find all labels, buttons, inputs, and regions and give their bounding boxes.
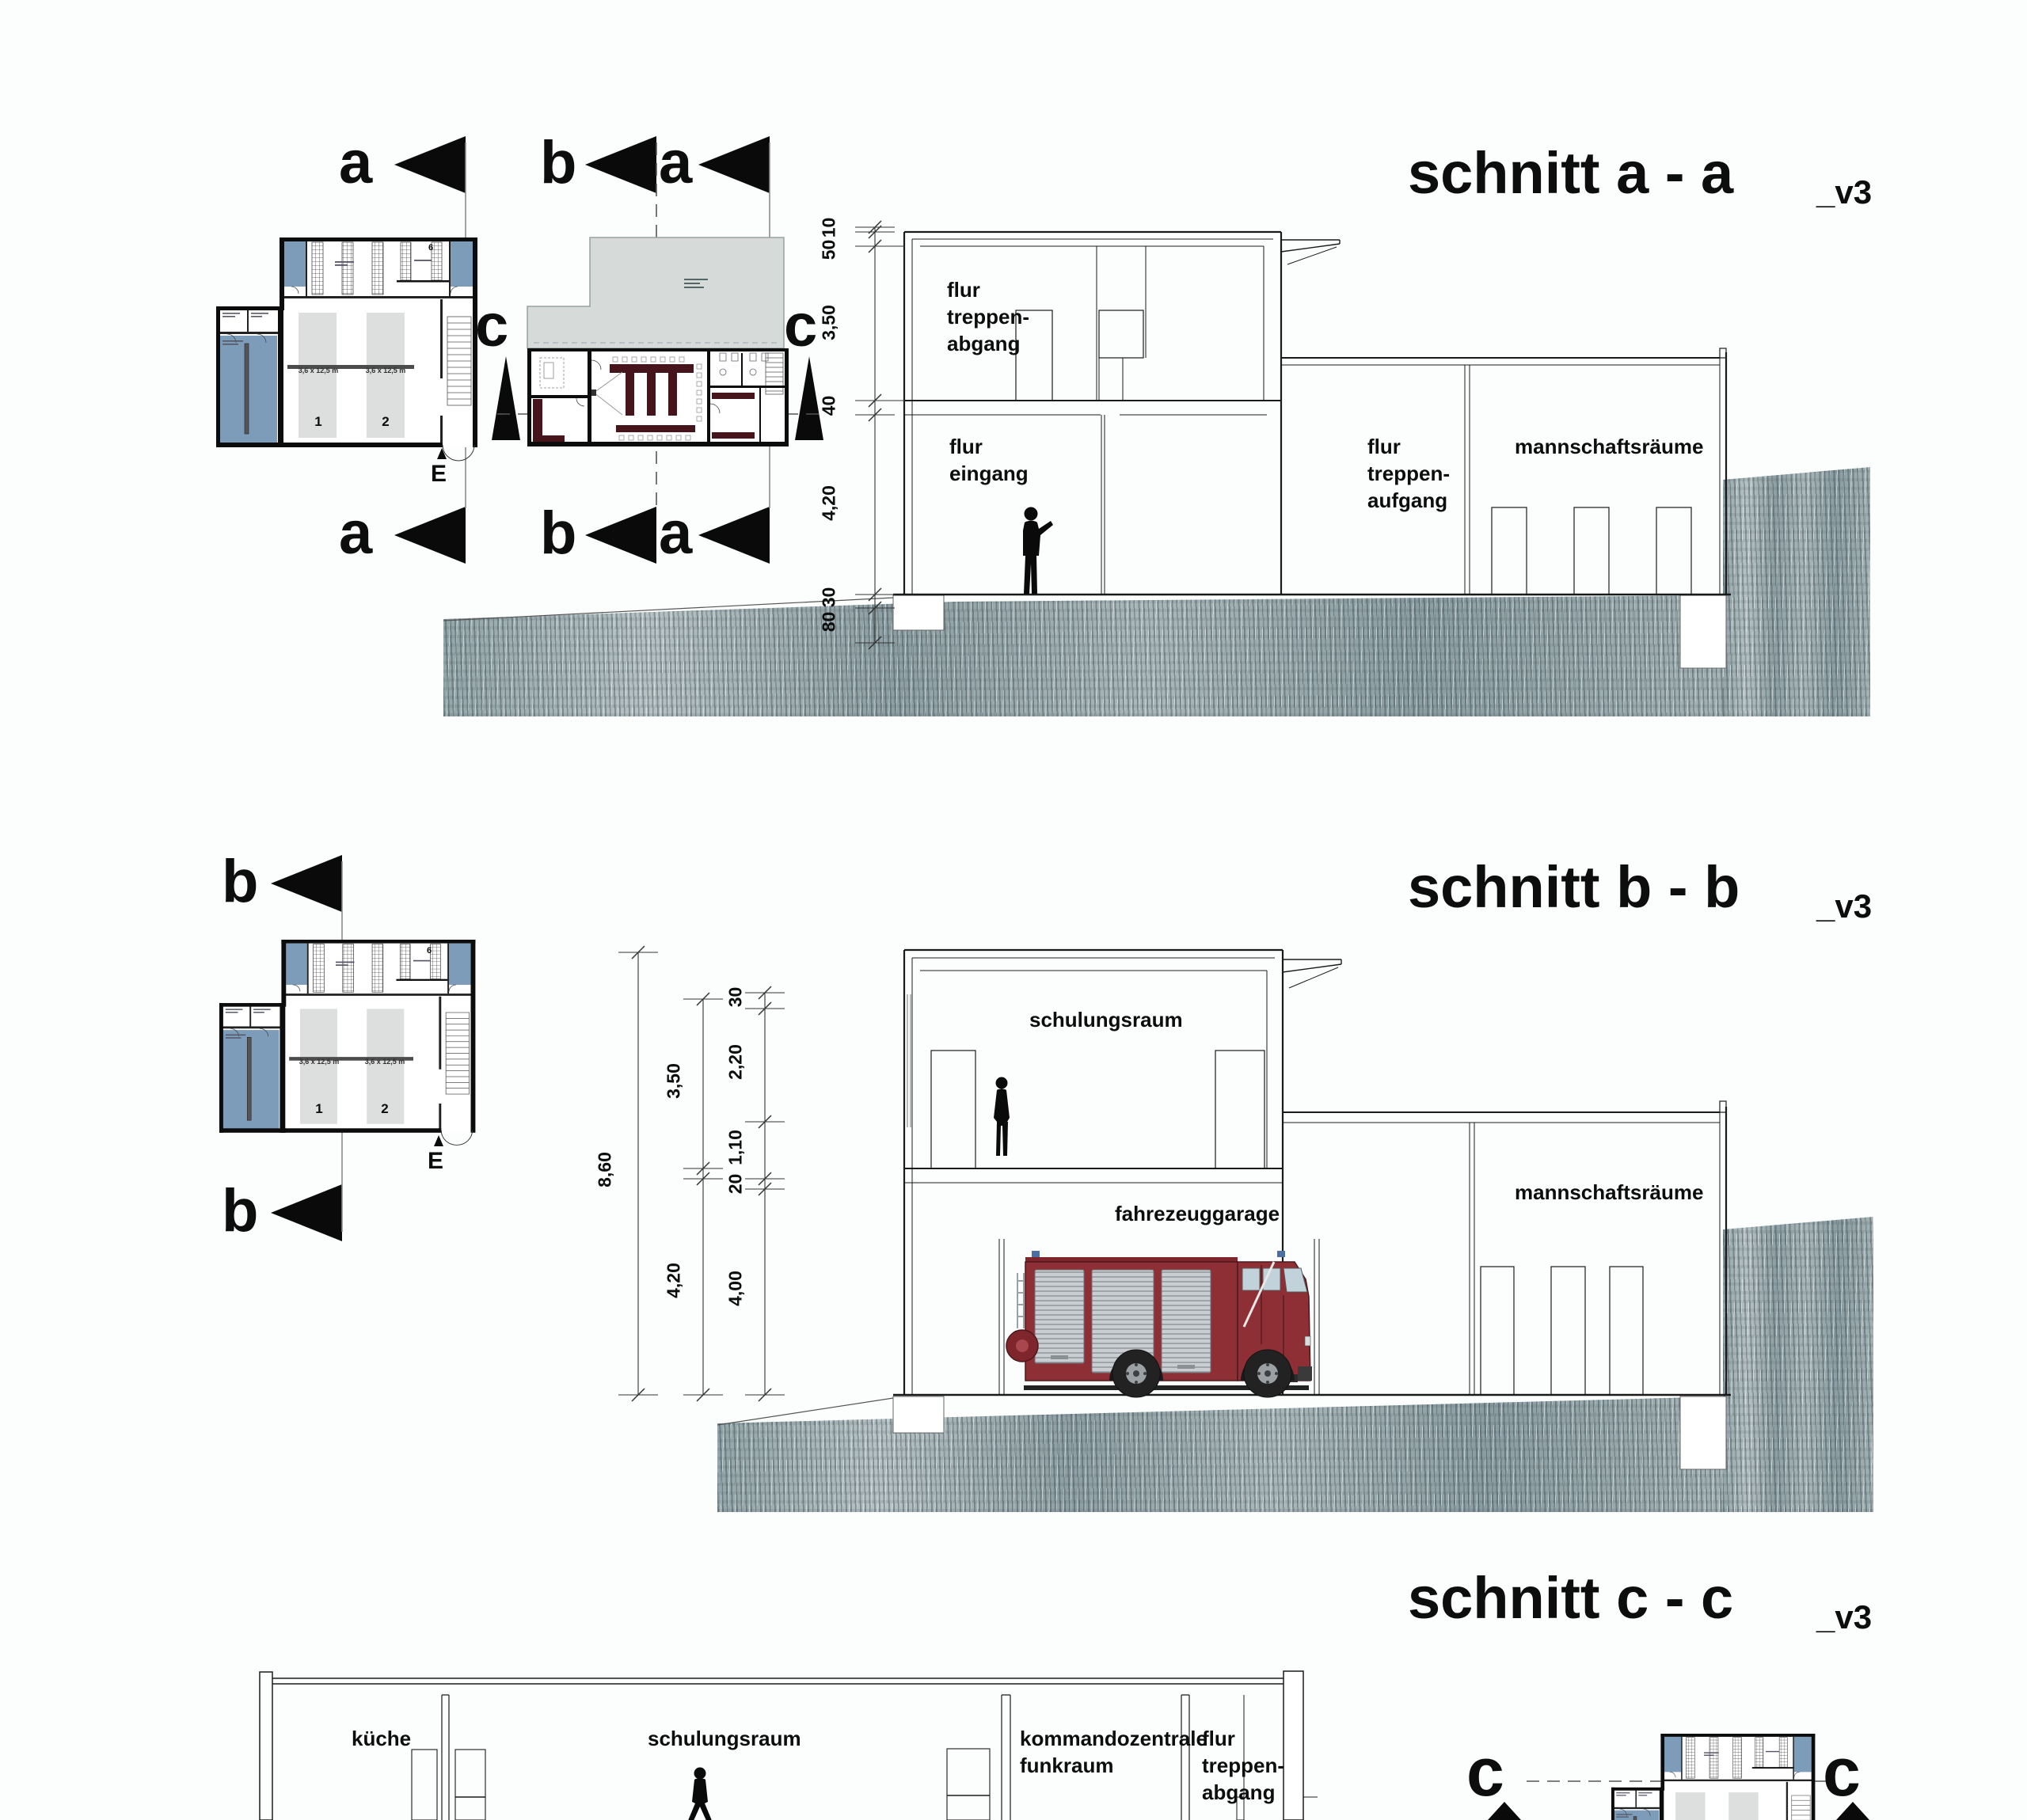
marker-c-bottom-left: c [1466, 1738, 1504, 1807]
plan-b-room6: 6 [423, 947, 435, 956]
marker-b-top: b [540, 133, 576, 193]
dim-a-50: 50 [820, 211, 839, 290]
dim-b-20: 20 [727, 1145, 745, 1224]
room-label-mannschaftsraeume-b: mannschaftsräume [1515, 1180, 1703, 1206]
plan-b-bay1-size: 3,6 x 12,5 m [283, 1058, 355, 1066]
dim-a-40: 40 [820, 367, 839, 446]
fire-truck [1006, 1251, 1312, 1397]
section-c-title: schnitt c - c [1408, 1569, 1733, 1628]
marker-c-right: c [784, 296, 817, 356]
plan-a-bay1-size: 3,6 x 12,5 m [283, 367, 354, 374]
dim-b-400: 4,00 [727, 1249, 745, 1328]
person-silhouette-b [994, 1077, 1010, 1157]
plan-thumbnail-ground-floor-a [216, 237, 477, 461]
section-c-version: _v3 [1816, 1601, 1872, 1634]
marker-a-top-left: a [339, 133, 372, 193]
plan-a-room6: 6 [424, 244, 437, 253]
room-label-fahrezeuggarage: fahrezeuggarage [1115, 1201, 1280, 1228]
marker-b-upper: b [222, 852, 258, 912]
plan-a-bay1-number: 1 [309, 415, 328, 428]
marker-b-bottom: b [540, 503, 576, 564]
section-b-title: schnitt b - b [1408, 858, 1740, 917]
marker-a-bottom-left: a [339, 503, 372, 564]
dim-b-220: 2,20 [727, 1023, 745, 1102]
room-label-schulungsraum-c: schulungsraum [648, 1726, 801, 1753]
room-label-flur-eingang: flur eingang [949, 434, 1029, 488]
room-label-flur-treppen-aufgang: flur treppen- aufgang [1367, 434, 1450, 514]
plan-thumbnail-upper-floor-a [527, 237, 789, 446]
block-b [219, 855, 1731, 1469]
room-label-flur-treppen-abgang-a: flur treppen- abgang [947, 277, 1029, 357]
dimension-chain-a [855, 221, 904, 649]
marker-a-top-right: a [659, 133, 692, 193]
room-label-mannschaftsraeume-a: mannschaftsräume [1515, 434, 1703, 461]
person-silhouette-a [1023, 507, 1053, 595]
plan-a-bay2-number: 2 [376, 415, 395, 428]
marker-entrance-b: E [428, 1149, 443, 1173]
plan-thumbnail-ground-floor-c [1611, 1734, 1815, 1820]
marker-b-lower: b [222, 1181, 258, 1241]
dim-a-80: 80 [820, 583, 839, 662]
dimension-chains-b [618, 946, 785, 1401]
room-label-flur-treppen-abgang-c: flur treppen- abgang [1202, 1726, 1284, 1806]
dim-a-420: 4,20 [820, 464, 839, 543]
plan-b-bay1-number: 1 [310, 1102, 329, 1115]
plan-a-bay2-size: 3,6 x 12,5 m [350, 367, 421, 374]
section-a-version: _v3 [1816, 176, 1872, 209]
dim-b-350: 3,50 [665, 1042, 683, 1121]
dim-a-350: 3,50 [820, 283, 839, 363]
marker-c-left: c [475, 296, 508, 356]
block-a [216, 136, 1731, 668]
dim-b-total: 8,60 [596, 1130, 614, 1210]
marker-c-bottom-right: c [1823, 1738, 1861, 1807]
architectural-sections-sheet: { "titles": { "section_a": "schnitt a - … [0, 0, 2027, 1820]
plan-b-bay2-size: 3,6 x 12,5 m [349, 1058, 420, 1066]
plan-thumbnail-ground-floor-b [219, 940, 475, 1145]
marker-entrance-a: E [431, 462, 447, 486]
room-label-schulungsraum-b: schulungsraum [1029, 1007, 1183, 1034]
section-a-title: schnitt a - a [1408, 144, 1733, 203]
person-silhouette-c [687, 1768, 713, 1820]
room-label-kueche: küche [352, 1726, 411, 1753]
dim-b-420: 4,20 [665, 1241, 683, 1320]
section-b-version: _v3 [1816, 890, 1872, 923]
marker-a-bottom-right: a [659, 503, 692, 564]
plan-b-bay2-number: 2 [375, 1102, 394, 1115]
room-label-kommandozentrale: kommandozentrale funkraum [1020, 1726, 1207, 1780]
